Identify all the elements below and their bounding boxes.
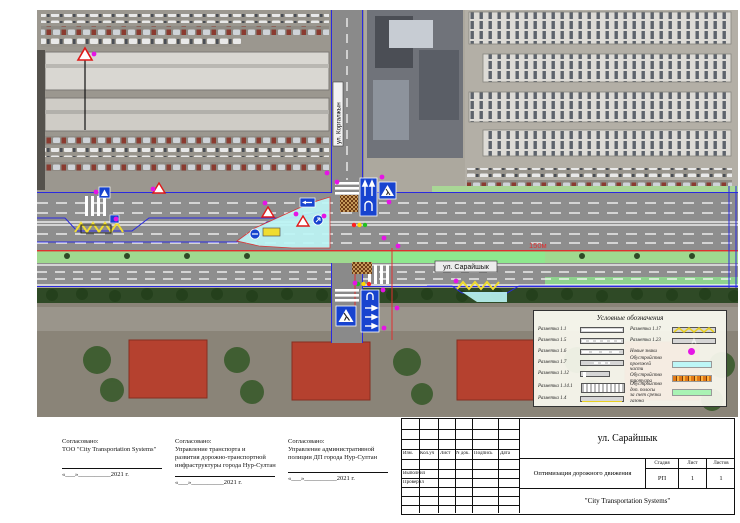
yellow-box-marking bbox=[263, 228, 280, 236]
svg-text:ул. Коргалжын: ул. Коргалжын bbox=[336, 102, 343, 144]
legend-item: Разметка 1.7 bbox=[538, 359, 626, 367]
col-koluch: Кол.уч bbox=[420, 451, 438, 456]
crosswalk-south bbox=[335, 289, 359, 302]
sign-small-blue bbox=[99, 187, 110, 198]
document-title: ул. Сарайшык bbox=[520, 419, 735, 459]
marking-zigzag-icon bbox=[672, 326, 716, 334]
signature-date-line: «___»__________2021 г. bbox=[175, 476, 275, 487]
street-label-cross: ул. Коргалжын bbox=[333, 82, 343, 146]
legend-item: Разметка 1.6 bbox=[538, 348, 626, 356]
lane-direction-sign-north bbox=[360, 178, 377, 216]
legend-item: Разметка 1.4 bbox=[538, 395, 626, 403]
col-data: Дата bbox=[500, 451, 518, 456]
marking-short-dash-icon bbox=[580, 359, 624, 367]
legend-title: Условные обозначения bbox=[534, 314, 726, 322]
legend-left-column: Разметка 1.1 Разметка 1.5 Разметка 1.6 Р… bbox=[538, 326, 626, 406]
legend-item: Обустройство проезжейчасти bbox=[630, 359, 724, 370]
col-podpis: Подпись bbox=[474, 451, 498, 456]
signature-date-line: «___»__________2021 г. bbox=[288, 472, 388, 483]
added-lane-swatch bbox=[672, 389, 716, 397]
bus-lane-marking-icon: A bbox=[672, 337, 716, 345]
sheets-label: Листов bbox=[706, 459, 735, 469]
company-name: "City Transportation Systems" bbox=[520, 489, 735, 513]
stage-value: РП bbox=[646, 469, 678, 488]
marking-yellow-line-icon bbox=[580, 395, 624, 403]
green-strip-north bbox=[432, 186, 738, 193]
legend-item: Разметка 1.17 bbox=[630, 326, 724, 334]
row-proveril: Проверил bbox=[403, 480, 437, 485]
approval-block-1: Согласовано: ТОО "City Transportation Sy… bbox=[62, 438, 174, 479]
marking-longdash-line-icon bbox=[580, 348, 624, 356]
sheet-value: 1 bbox=[678, 469, 706, 488]
added-lane-green-2 bbox=[545, 277, 738, 285]
marking-zebra-icon bbox=[580, 383, 624, 391]
pedestrian-crossing-sign bbox=[379, 182, 396, 199]
traffic-light bbox=[352, 223, 367, 227]
legend-item: Разметка 1.1 bbox=[538, 326, 626, 334]
roadway-works-swatch bbox=[672, 361, 716, 369]
document-subtitle: Оптимизация дорожного движения bbox=[520, 459, 645, 489]
legend-item: Разметка 1.14.1 bbox=[538, 381, 626, 392]
new-sign-dot-icon bbox=[672, 348, 716, 356]
pedestrian-crossing-sign bbox=[336, 306, 356, 326]
legend-item: Разметка 1.5 bbox=[538, 337, 626, 345]
col-ndok: N док. bbox=[456, 451, 472, 456]
title-block: Изм. Кол.уч Лист N док. Подпись Дата Вып… bbox=[401, 418, 735, 515]
approval-block-3: Согласовано: Управление административной… bbox=[288, 438, 400, 483]
svg-text:ул. Сарайшык: ул. Сарайшык bbox=[443, 263, 490, 271]
sheets-value: 1 bbox=[706, 469, 735, 488]
red-edge-line bbox=[37, 250, 738, 251]
approval-block-2: Согласовано: Управление транспорта и раз… bbox=[175, 438, 287, 487]
sign-left-arrow bbox=[300, 198, 315, 207]
legend-item: Разметка 1.23 A bbox=[630, 337, 724, 345]
col-list: Лист bbox=[440, 451, 455, 456]
sidewalk-works-patch bbox=[352, 262, 372, 274]
crosswalk-north bbox=[335, 182, 359, 195]
drawing-sheet: ул. Коргалжын ул. Сарайшык 150м Условные… bbox=[0, 0, 740, 523]
marking-dashed-line-icon bbox=[580, 337, 624, 345]
street-label-main: ул. Сарайшык bbox=[435, 261, 497, 272]
marking-solid-line-icon bbox=[580, 326, 624, 334]
signature-date-line: «___»__________2021 г. bbox=[62, 468, 162, 479]
svg-text:A: A bbox=[692, 339, 697, 346]
sidewalk-works-swatch bbox=[672, 375, 716, 383]
row-vypolnil: Выполнил bbox=[403, 471, 437, 476]
title-block-right: ул. Сарайшык Оптимизация дорожного движе… bbox=[519, 419, 734, 513]
sheet-label: Лист bbox=[678, 459, 706, 469]
sidewalk-works-patch bbox=[340, 195, 358, 212]
legend-box: Условные обозначения Разметка 1.1 Размет… bbox=[533, 310, 727, 407]
marking-stop-line-icon bbox=[580, 370, 624, 378]
distance-label: 150м bbox=[529, 241, 547, 250]
legend-item: Обустройство доп. полосыза счет срезки г… bbox=[630, 387, 724, 399]
legend-item: Разметка 1.12 bbox=[538, 370, 626, 378]
col-izm: Изм. bbox=[403, 451, 419, 456]
legend-item: Новые знаки bbox=[630, 348, 724, 356]
legend-right-column: Разметка 1.17 Разметка 1.23 A Новые знак… bbox=[630, 326, 724, 402]
traffic-light bbox=[356, 282, 371, 286]
lane-direction-sign-south bbox=[361, 290, 379, 332]
revision-table: Изм. Кол.уч Лист N док. Подпись Дата Вып… bbox=[402, 419, 519, 513]
stage-label: Стадия bbox=[646, 459, 678, 469]
